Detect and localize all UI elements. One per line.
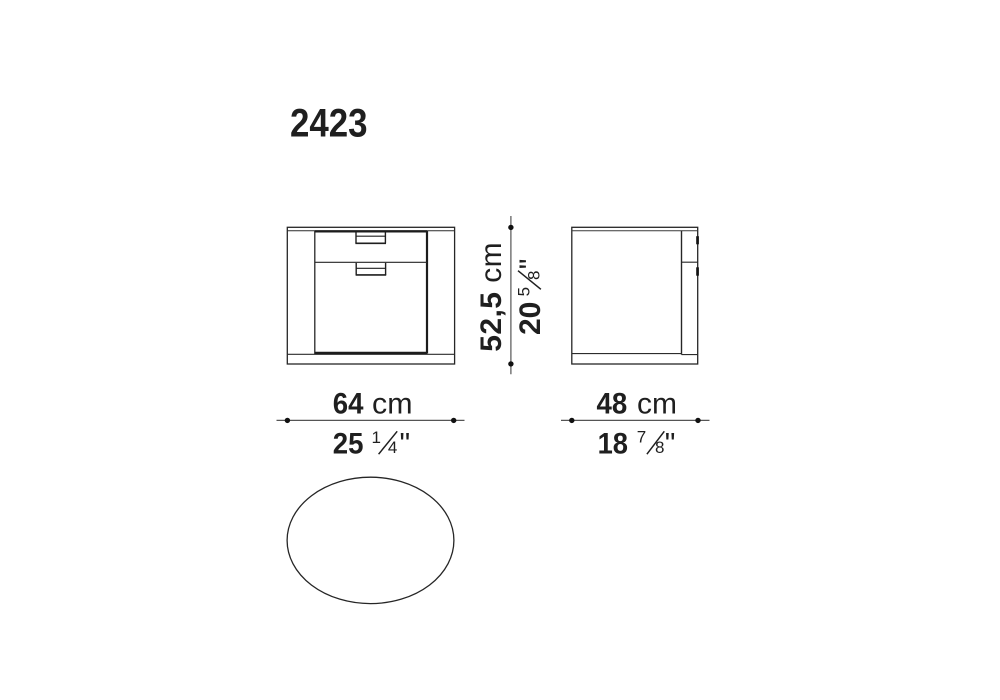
svg-text:20: 20 bbox=[514, 302, 547, 335]
svg-text:2423: 2423 bbox=[290, 101, 368, 145]
svg-text:4: 4 bbox=[388, 438, 397, 457]
svg-text:48: 48 bbox=[597, 387, 628, 420]
svg-text:18: 18 bbox=[598, 427, 628, 460]
svg-text:cm: cm bbox=[637, 387, 677, 420]
svg-text:8: 8 bbox=[525, 271, 544, 280]
svg-text:25: 25 bbox=[333, 427, 364, 460]
svg-text:7: 7 bbox=[637, 427, 646, 446]
svg-text:52,5 cm: 52,5 cm bbox=[475, 242, 508, 352]
svg-text:": " bbox=[514, 259, 547, 270]
svg-text:cm: cm bbox=[372, 387, 413, 420]
svg-text:": " bbox=[665, 427, 676, 460]
svg-text:64: 64 bbox=[333, 387, 364, 420]
svg-text:": " bbox=[400, 427, 411, 460]
svg-text:5: 5 bbox=[515, 287, 534, 296]
svg-text:8: 8 bbox=[655, 438, 664, 457]
svg-text:1: 1 bbox=[372, 428, 381, 447]
